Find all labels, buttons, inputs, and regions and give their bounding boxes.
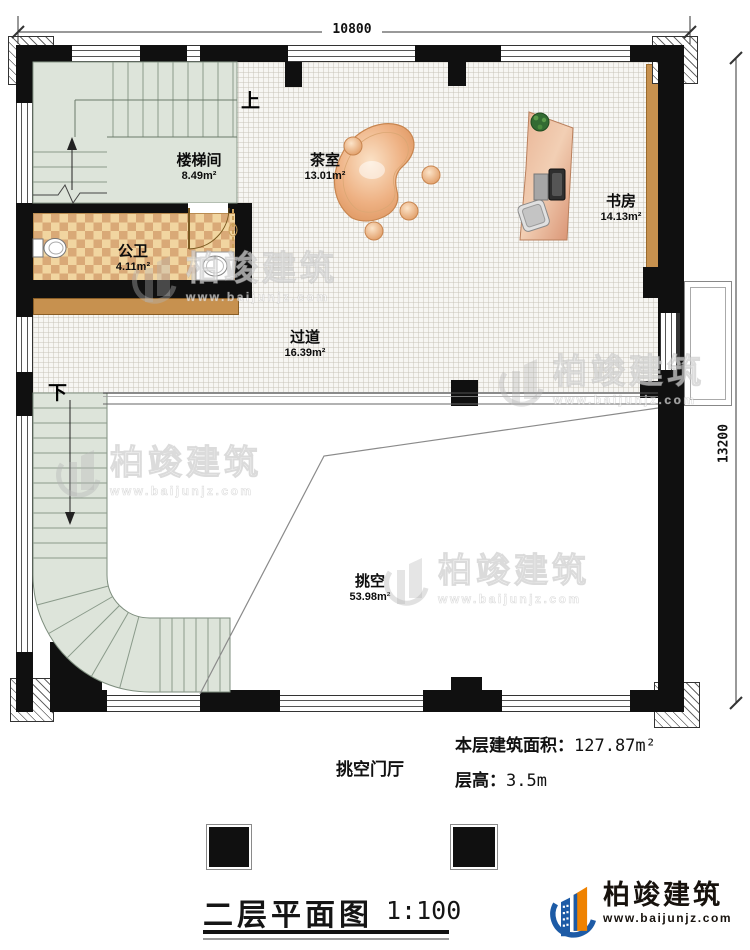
floor-texture-stairhead (33, 392, 103, 416)
stair-down (33, 393, 230, 692)
wall-under-stair (50, 642, 102, 694)
wall-left-2 (16, 203, 33, 317)
window-right (660, 313, 680, 370)
watermark-icon (52, 444, 104, 500)
room-label-stairwell: 楼梯间 8.49m² (149, 153, 249, 182)
void-boundary-line (200, 408, 658, 694)
column-marker-left (209, 827, 249, 867)
wall-bottom-3-stub (451, 677, 482, 692)
wall-left-3 (16, 372, 33, 416)
wall-bottom-4 (630, 690, 684, 712)
floor-area-note: 本层建筑面积：127.87m² (455, 731, 656, 756)
floor-area-label: 本层建筑面积： (455, 736, 574, 755)
room-label-corridor: 过道 16.39m² (255, 330, 355, 359)
wall-bottom-1 (50, 690, 107, 712)
stair-down-label: 下 (48, 378, 67, 405)
corridor-railing (103, 393, 658, 404)
title-underline-thin (203, 938, 449, 940)
dimension-top-value: 10800 (322, 22, 382, 37)
wall-top-2 (140, 45, 187, 62)
watermark-3: 柏竣建筑 www.baijunjz.com (52, 444, 262, 500)
room-label-bathroom: 公卫 4.11m² (83, 244, 183, 273)
wall-top-3 (200, 45, 288, 62)
floor-area-value: 127.87m² (574, 736, 656, 756)
window-band-bottom (16, 695, 684, 712)
brand-name: 柏竣建筑 (603, 881, 732, 909)
column-marker-right (453, 827, 495, 867)
hall-label: 挑空门厅 (336, 755, 404, 780)
bathroom-wall-top-left (33, 203, 188, 213)
window-band-top (16, 45, 684, 62)
wall-left-4 (16, 652, 33, 712)
wall-bottom-2 (200, 690, 280, 712)
wall-right (658, 45, 684, 712)
floor-height-value: 3.5m (506, 771, 547, 791)
wall-top-4-stub (448, 62, 466, 86)
bathroom-cabinet (33, 298, 239, 315)
brand-url: www.baijunjz.com (603, 911, 732, 925)
bathroom-wall-bottom (33, 280, 252, 298)
floor-height-note: 层高：3.5m (455, 766, 547, 791)
room-label-tea-room: 茶室 13.01m² (275, 153, 375, 182)
floor-plan-sheet: 10800 13200 楼梯间 8.49m² 茶室 13.01m² 书房 14.… (0, 0, 750, 950)
bathroom-wall-top-right (228, 203, 252, 213)
dimension-right-value: 13200 (717, 414, 732, 474)
title-underline-thick (203, 930, 449, 934)
sheet-title: 二层平面图 (203, 890, 373, 934)
room-label-study: 书房 14.13m² (571, 194, 671, 223)
brand-logo-icon (543, 881, 597, 943)
wall-right-jog-1 (643, 267, 684, 298)
room-label-void: 挑空 53.98m² (320, 574, 420, 603)
floor-height-label: 层高： (455, 771, 506, 790)
wall-top-4 (415, 45, 501, 62)
wall-right-jog-2 (640, 381, 684, 398)
brand-logo: 柏竣建筑 www.baijunjz.com (543, 881, 732, 943)
balcony-inner-line (690, 287, 726, 400)
wall-top-3-stub (285, 62, 302, 87)
stair-up-label: 上 (241, 86, 260, 113)
wall-bottom-3 (423, 690, 502, 712)
wall-left-1 (16, 45, 33, 103)
sheet-scale: 1:100 (386, 896, 461, 925)
railing-column (451, 380, 478, 406)
